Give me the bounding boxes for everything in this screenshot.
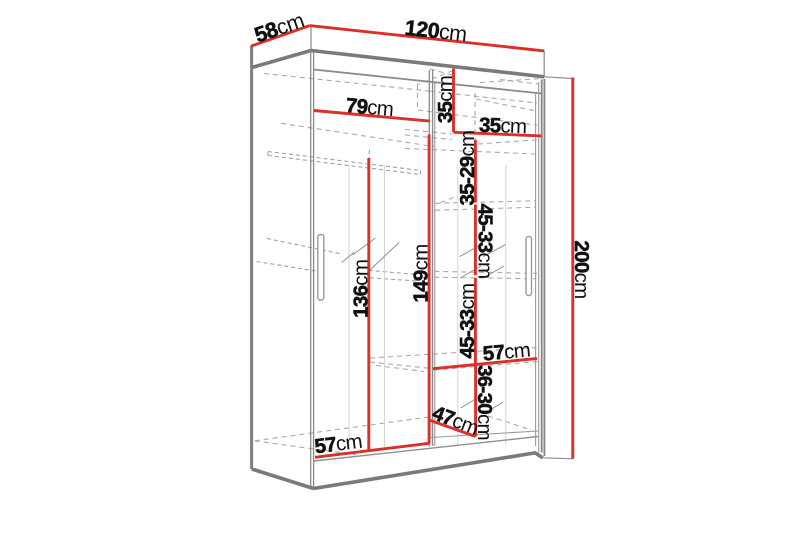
- svg-text:200cm: 200cm: [570, 240, 593, 298]
- svg-text:45-33cm: 45-33cm: [456, 284, 479, 359]
- svg-text:149cm: 149cm: [410, 244, 433, 302]
- svg-text:136cm: 136cm: [349, 260, 372, 318]
- svg-text:79cm: 79cm: [345, 94, 394, 121]
- svg-text:45-33cm: 45-33cm: [474, 204, 497, 279]
- svg-text:35-29cm: 35-29cm: [456, 131, 479, 206]
- svg-text:35cm: 35cm: [434, 76, 457, 123]
- svg-text:35cm: 35cm: [479, 114, 527, 139]
- svg-text:57cm: 57cm: [482, 339, 531, 366]
